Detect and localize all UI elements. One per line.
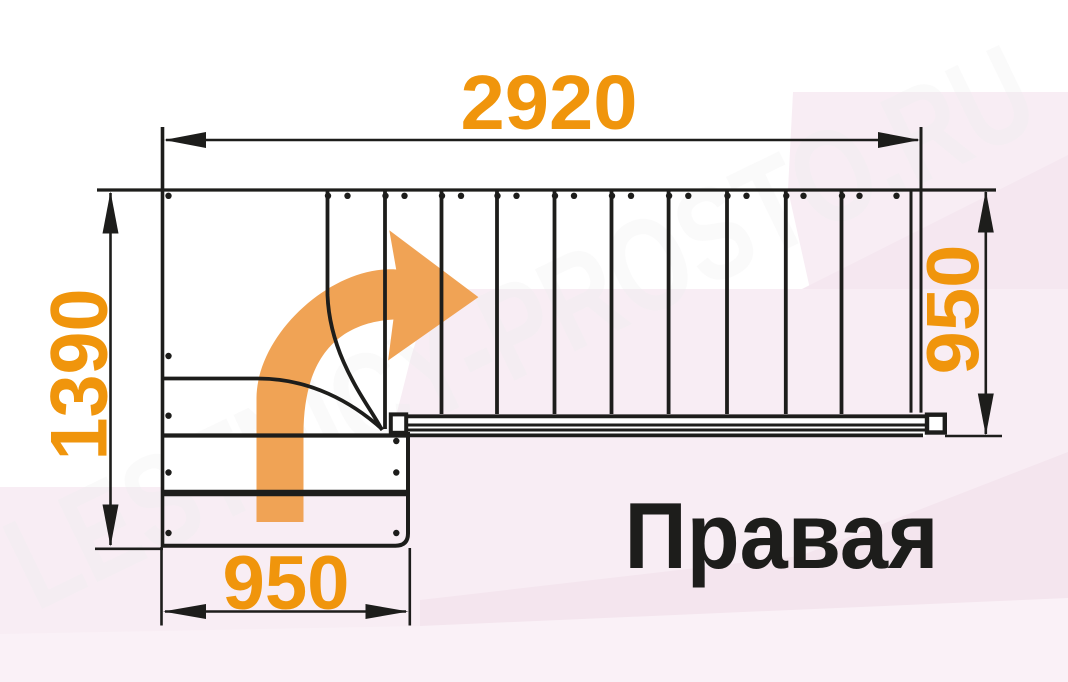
svg-text:950: 950 [223, 541, 350, 626]
svg-text:Правая: Правая [625, 483, 939, 588]
svg-text:1390: 1390 [35, 289, 125, 461]
svg-text:2920: 2920 [461, 60, 638, 146]
svg-text:950: 950 [912, 245, 995, 375]
